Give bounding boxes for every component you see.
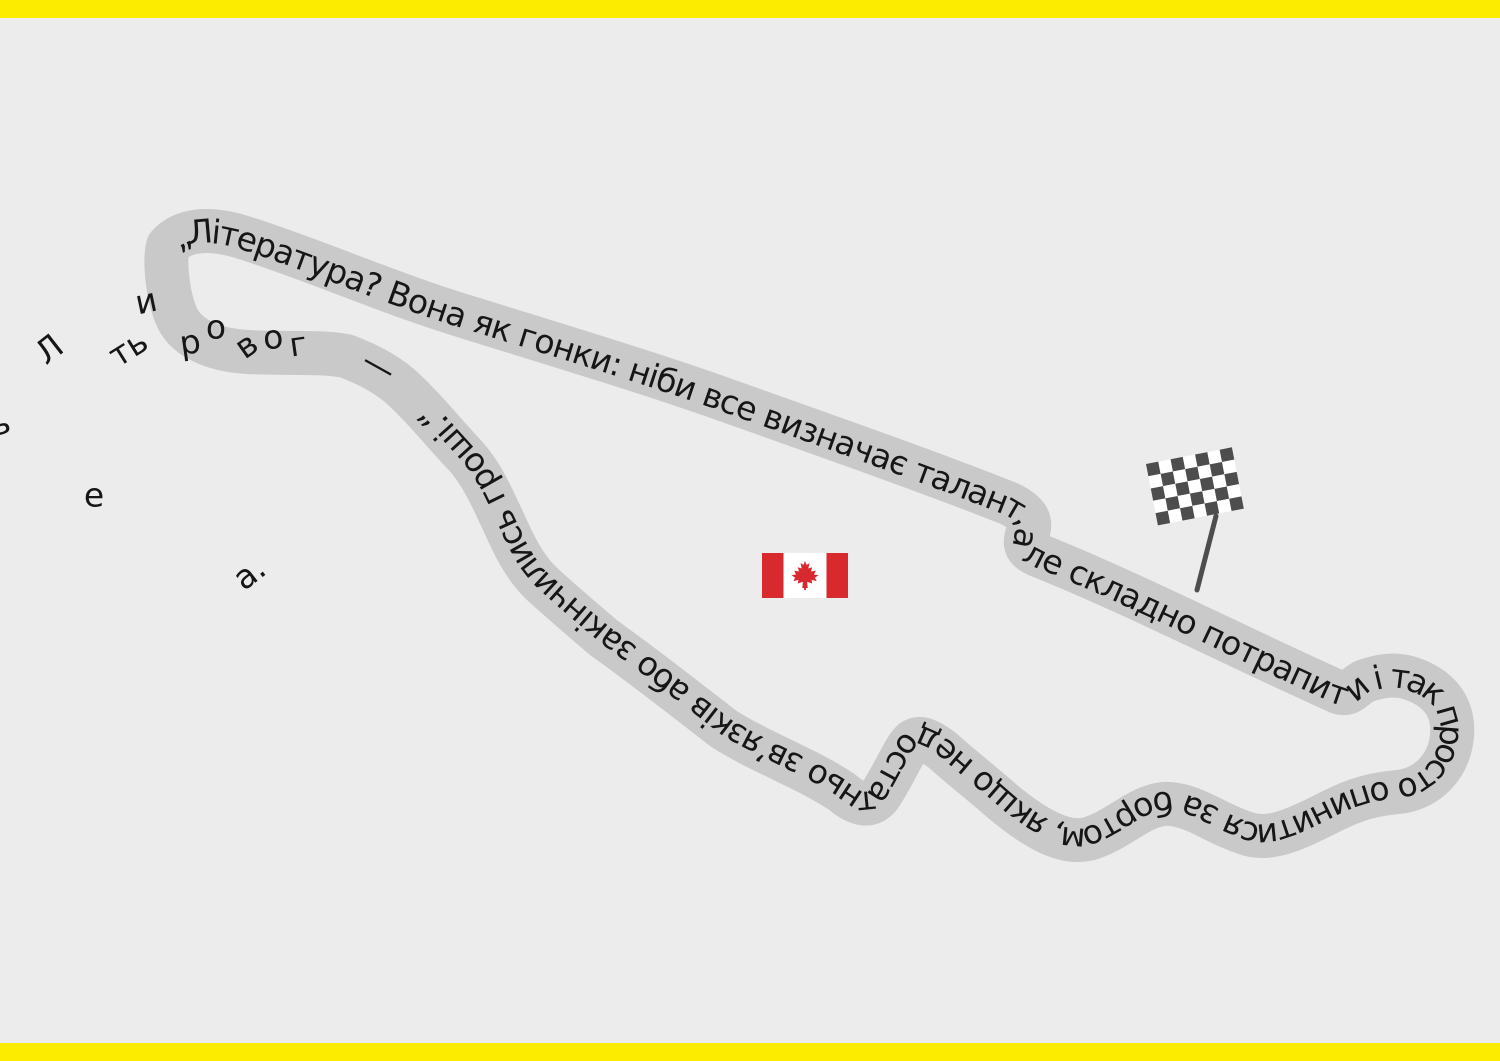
checker-cell [1222, 460, 1237, 475]
track-quote: „Література? Вона як гонки: ніби все виз… [165, 211, 1472, 861]
checker-cell [1202, 489, 1217, 504]
checker-cell [1197, 464, 1212, 479]
checker-cell [1227, 484, 1242, 499]
checker-cell [1148, 474, 1163, 489]
checker-cell [1217, 499, 1232, 514]
checker-cell [1163, 484, 1178, 499]
checker-cell [1161, 472, 1176, 487]
checker-cell [1175, 481, 1190, 496]
checker-cell [1173, 469, 1188, 484]
checker-cell [1146, 462, 1161, 477]
checker-cell [1178, 494, 1193, 509]
scattered-letters: ьЛитьровогеа. [0, 280, 309, 598]
scattered-letter: о [206, 308, 226, 347]
canada-flag-right-band [827, 553, 849, 598]
checker-cell [1183, 454, 1198, 469]
checker-cell [1205, 501, 1220, 516]
checker-cell [1153, 498, 1168, 513]
race-track-illustration: „Література? Вона як гонки: ніби все виз… [0, 0, 1500, 1061]
checker-cell [1190, 491, 1205, 506]
canada-flag-left-band [762, 553, 784, 598]
checker-cell [1195, 452, 1210, 467]
scattered-letter: о [261, 317, 285, 358]
scattered-letter: Л [27, 326, 71, 372]
checker-cell [1207, 450, 1222, 465]
bottom-accent-bar [0, 1043, 1500, 1061]
checkered-flag-icon [1146, 447, 1244, 590]
scattered-letter: ть [101, 321, 154, 375]
checker-cell [1185, 467, 1200, 482]
checker-cell [1168, 508, 1183, 523]
scattered-letter: е [84, 476, 104, 515]
canada-flag-icon [762, 553, 848, 598]
checker-cell [1200, 477, 1215, 492]
checker-cell [1151, 486, 1166, 501]
flag-pole [1197, 516, 1216, 590]
checker-cell [1180, 506, 1195, 521]
checker-cell [1156, 511, 1171, 526]
checker-cell [1215, 487, 1230, 502]
checker-cell [1210, 462, 1225, 477]
checker-cell [1165, 496, 1180, 511]
checker-cell [1158, 459, 1173, 474]
checker-cell [1220, 447, 1235, 462]
checker-cell [1224, 472, 1239, 487]
scattered-letter: а. [225, 548, 273, 598]
scattered-letter: ь [0, 402, 14, 445]
checker-cell [1192, 504, 1207, 519]
race-track-path [166, 231, 1452, 840]
checker-cell [1188, 479, 1203, 494]
poster: „Література? Вона як гонки: ніби все виз… [0, 0, 1500, 1061]
checker-cell [1171, 457, 1186, 472]
checker-cell [1212, 474, 1227, 489]
checker-cell [1229, 496, 1244, 511]
